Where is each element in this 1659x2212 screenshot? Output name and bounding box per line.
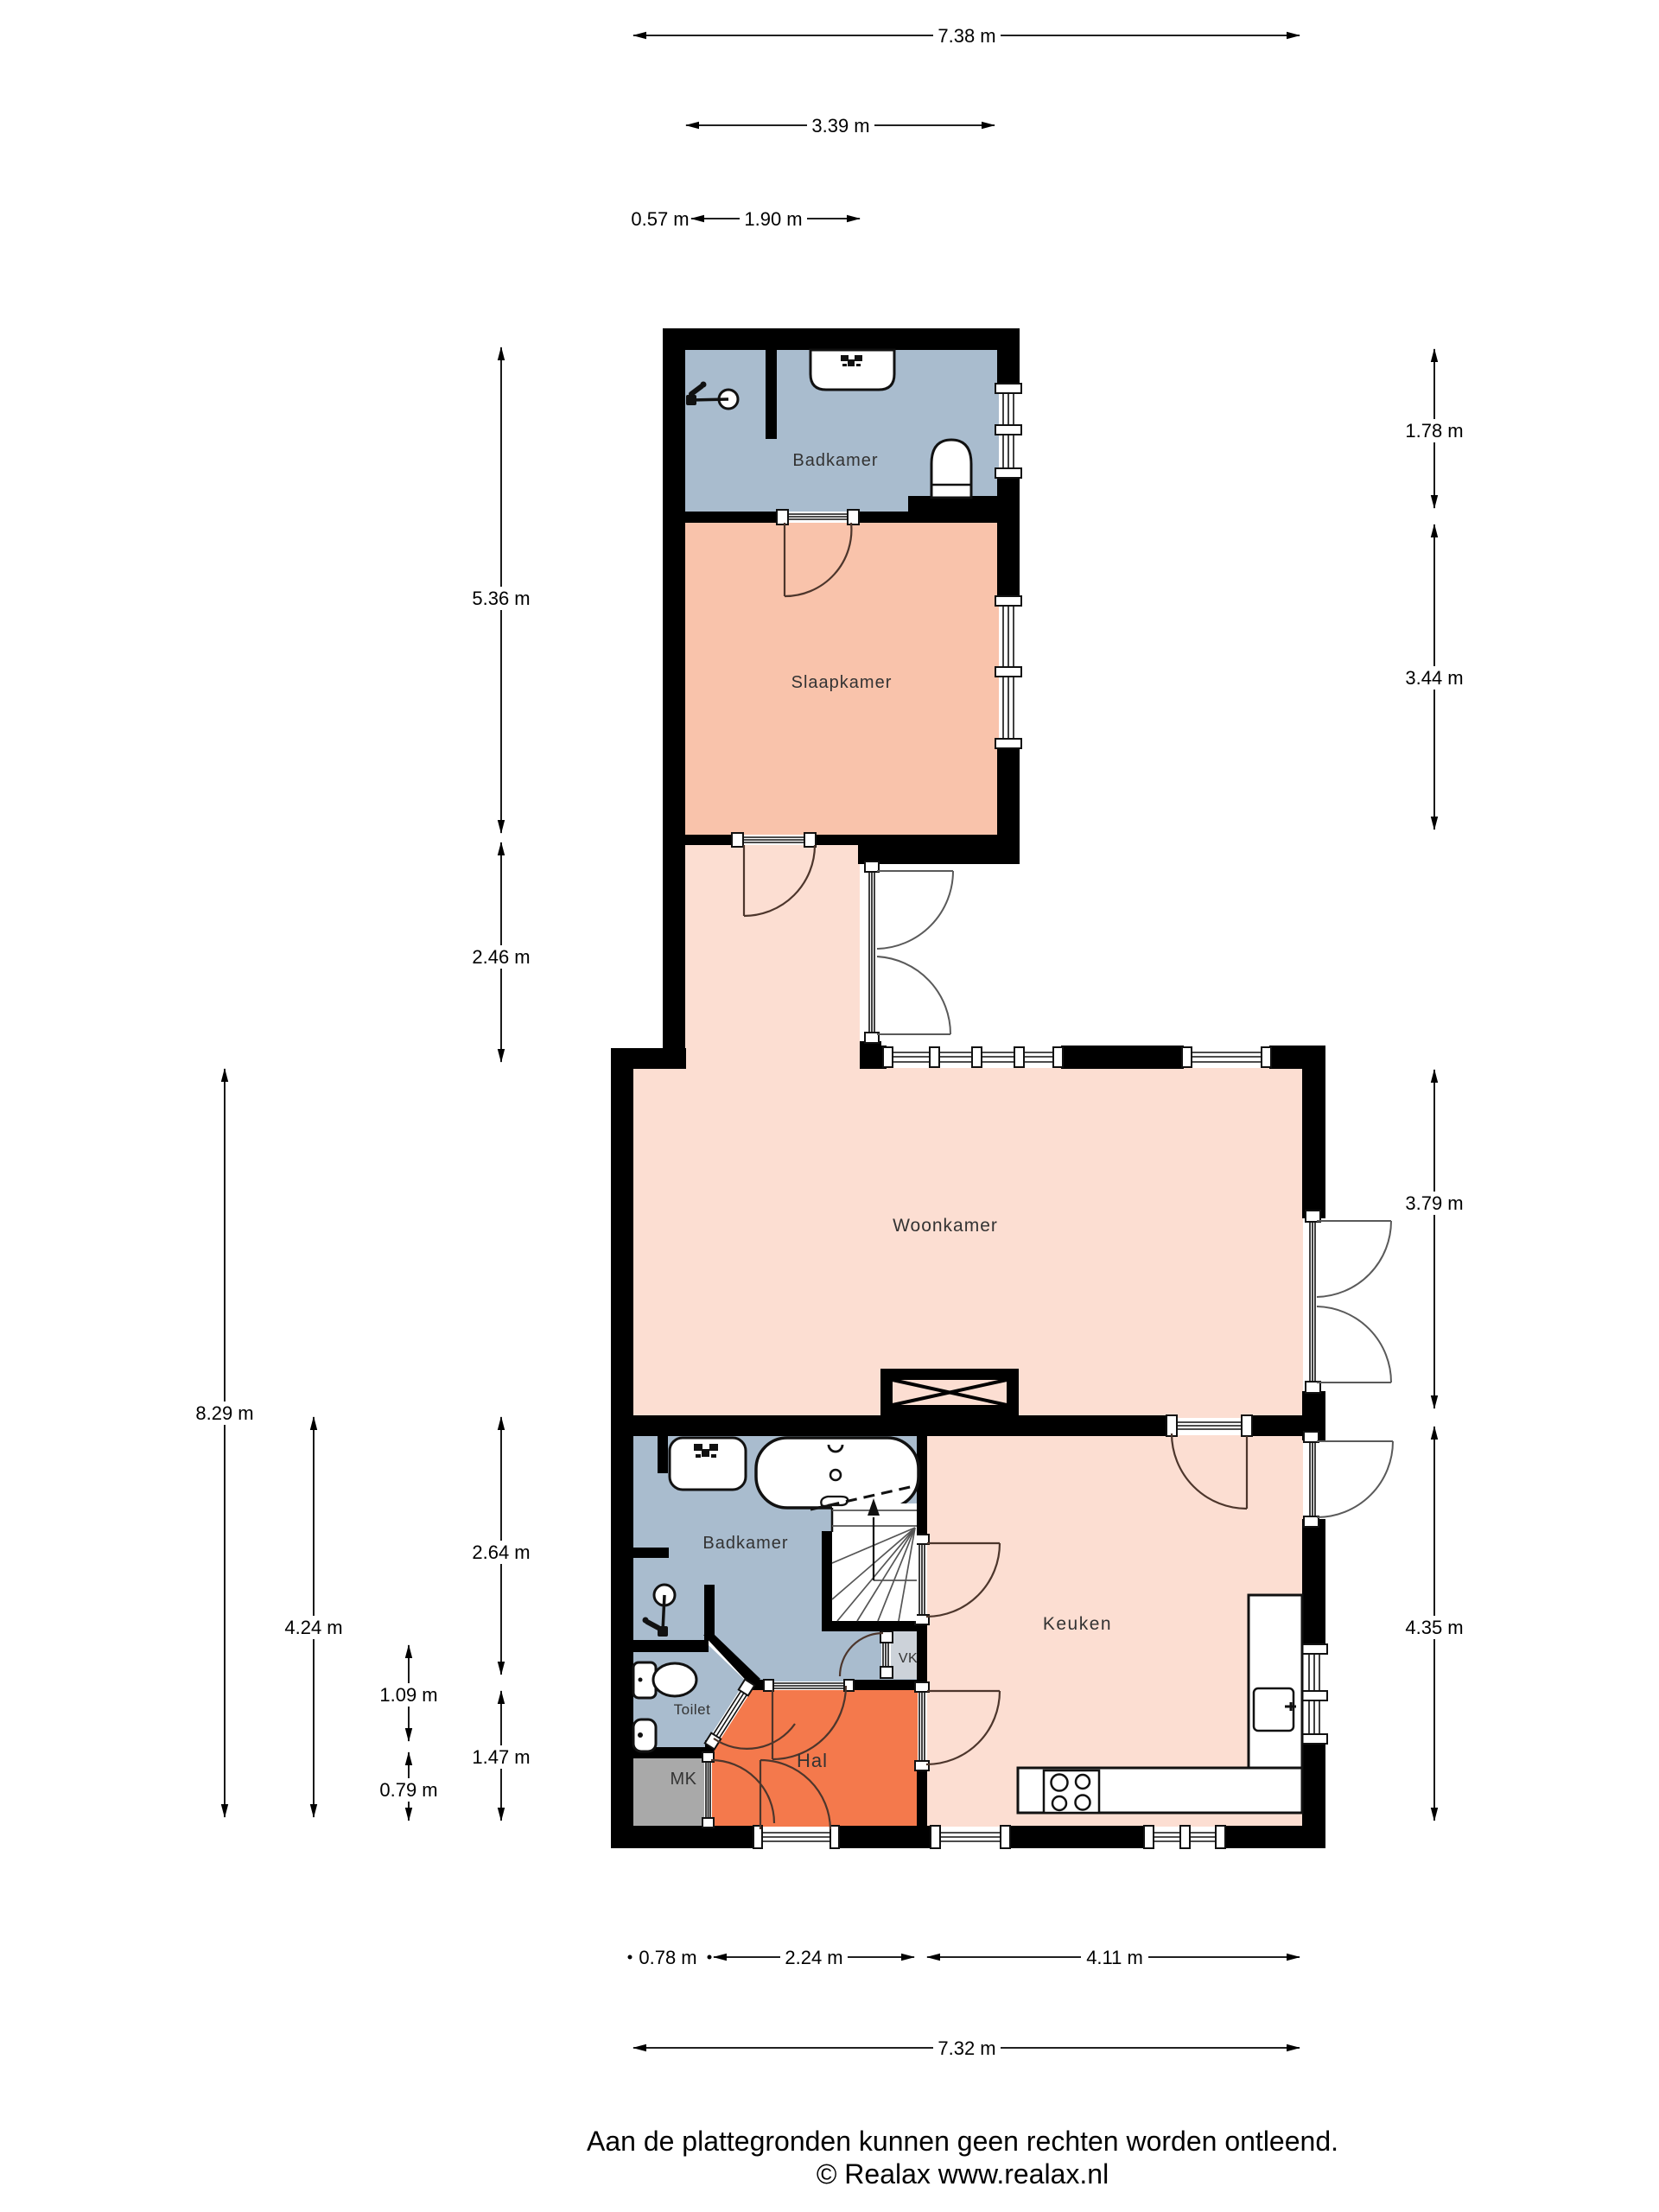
svg-text:VK: VK — [899, 1651, 918, 1666]
svg-text:4.24 m: 4.24 m — [284, 1617, 342, 1638]
svg-text:Slaapkamer: Slaapkamer — [791, 673, 893, 692]
svg-text:Toilet: Toilet — [674, 1701, 711, 1718]
svg-text:2.24 m: 2.24 m — [785, 1947, 842, 1968]
svg-text:1.90 m: 1.90 m — [744, 208, 802, 230]
svg-text:Badkamer: Badkamer — [792, 451, 878, 470]
svg-text:3.79 m: 3.79 m — [1405, 1192, 1463, 1214]
svg-text:Hal: Hal — [797, 1750, 828, 1771]
svg-text:MK: MK — [671, 1770, 697, 1789]
svg-text:0.79 m: 0.79 m — [379, 1779, 437, 1801]
svg-text:3.39 m: 3.39 m — [811, 115, 869, 137]
svg-text:7.38 m: 7.38 m — [938, 25, 995, 47]
svg-text:8.29 m: 8.29 m — [195, 1402, 253, 1424]
svg-text:5.36 m: 5.36 m — [472, 588, 530, 609]
svg-text:4.35 m: 4.35 m — [1405, 1617, 1463, 1638]
svg-text:2.46 m: 2.46 m — [472, 946, 530, 968]
svg-text:1.78 m: 1.78 m — [1405, 420, 1463, 442]
svg-text:0.57 m: 0.57 m — [631, 208, 689, 230]
svg-text:Keuken: Keuken — [1043, 1614, 1112, 1634]
svg-text:Woonkamer: Woonkamer — [893, 1216, 998, 1236]
svg-text:7.32 m: 7.32 m — [938, 2037, 995, 2059]
svg-text:1.09 m: 1.09 m — [379, 1684, 437, 1706]
svg-text:3.44 m: 3.44 m — [1405, 667, 1463, 689]
svg-text:© Realax www.realax.nl: © Realax www.realax.nl — [817, 2158, 1109, 2190]
svg-text:1.47 m: 1.47 m — [472, 1746, 530, 1768]
svg-text:0.78 m: 0.78 m — [639, 1947, 696, 1968]
svg-text:Aan de plattegronden kunnen ge: Aan de plattegronden kunnen geen rechten… — [587, 2126, 1338, 2157]
svg-text:Badkamer: Badkamer — [702, 1534, 788, 1553]
svg-text:2.64 m: 2.64 m — [472, 1541, 530, 1563]
svg-text:4.11 m: 4.11 m — [1086, 1947, 1143, 1968]
